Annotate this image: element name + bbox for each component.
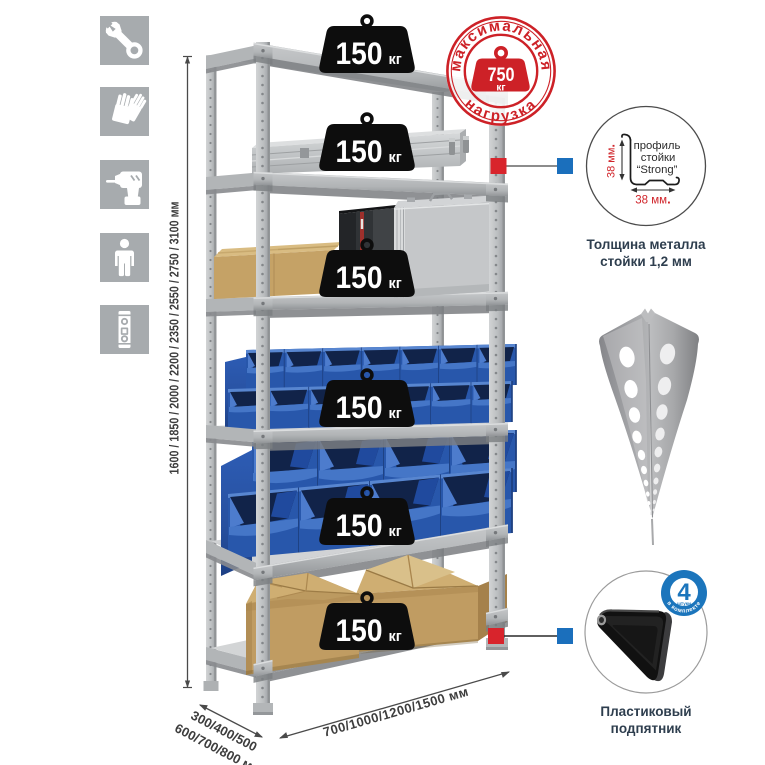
svg-text:кг: кг (389, 524, 402, 540)
svg-text:кг: кг (389, 629, 402, 645)
svg-text:кг: кг (496, 83, 505, 94)
svg-text:профиль: профиль (634, 140, 681, 152)
svg-text:кг: кг (389, 276, 402, 292)
svg-text:150: 150 (336, 133, 383, 169)
svg-text:150: 150 (336, 612, 383, 648)
svg-text:стойки: стойки (641, 152, 676, 164)
svg-text:кг: кг (389, 406, 402, 422)
svg-text:150: 150 (336, 389, 383, 425)
svg-text:38 мм.: 38 мм. (603, 144, 618, 178)
svg-text:150: 150 (336, 259, 383, 295)
svg-text:Пластиковый: Пластиковый (600, 704, 691, 719)
svg-text:150: 150 (336, 35, 383, 71)
svg-text:кг: кг (389, 52, 402, 68)
svg-text:150: 150 (336, 507, 383, 543)
svg-text:кг: кг (389, 150, 402, 166)
svg-text:стойки 1,2 мм: стойки 1,2 мм (600, 254, 692, 269)
svg-text:1600 / 1850 / 2000 / 2200 / 23: 1600 / 1850 / 2000 / 2200 / 2350 / 2550 … (168, 202, 182, 475)
svg-text:штуки: штуки (677, 601, 691, 606)
svg-text:Толщина металла: Толщина металла (586, 237, 706, 252)
svg-text:“Strong”: “Strong” (637, 164, 678, 176)
svg-text:38 мм.: 38 мм. (635, 192, 670, 207)
svg-text:подпятник: подпятник (611, 721, 682, 736)
